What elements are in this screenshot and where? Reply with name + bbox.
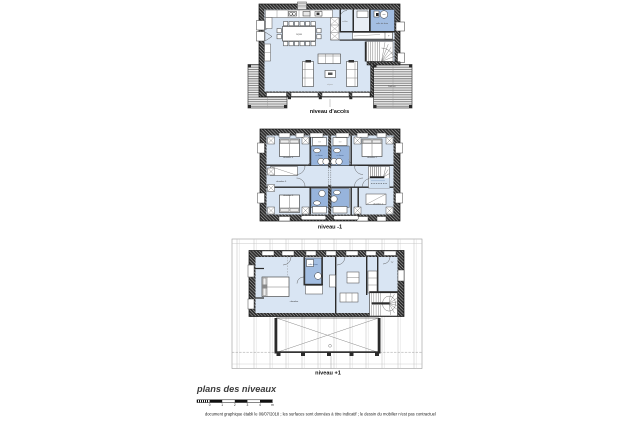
svg-text:m: m <box>271 403 274 407</box>
svg-text:salle d'eau: salle d'eau <box>308 264 318 266</box>
svg-text:2: 2 <box>234 403 236 407</box>
svg-text:0: 0 <box>209 403 211 407</box>
svg-text:3: 3 <box>247 403 249 407</box>
svg-text:chambre 2: chambre 2 <box>373 203 384 206</box>
svg-text:niveau d'accès: niveau d'accès <box>310 109 350 115</box>
svg-text:s. d'eau: s. d'eau <box>337 155 344 157</box>
svg-text:repas: repas <box>296 33 303 36</box>
svg-text:1: 1 <box>221 403 223 407</box>
svg-text:cellier: cellier <box>342 20 348 23</box>
svg-text:plans des niveaux: plans des niveaux <box>196 384 277 394</box>
svg-text:chambre 4: chambre 4 <box>283 156 294 159</box>
svg-text:niveau +1: niveau +1 <box>315 371 341 377</box>
svg-text:séjour: séjour <box>327 83 333 86</box>
svg-text:4: 4 <box>259 403 261 407</box>
svg-text:niveau -1: niveau -1 <box>318 225 342 231</box>
svg-text:chambre: chambre <box>290 300 299 303</box>
svg-text:+: + <box>388 34 390 38</box>
svg-text:chambre 5: chambre 5 <box>276 180 287 183</box>
svg-text:▭: ▭ <box>318 140 321 144</box>
svg-text:document graphique établi le 0: document graphique établi le 06/07/2018 … <box>205 411 436 416</box>
svg-text:chambre 1: chambre 1 <box>367 156 378 159</box>
svg-text:▭: ▭ <box>339 140 342 144</box>
svg-text:balcon: balcon <box>388 84 396 88</box>
svg-text:chambre 3: chambre 3 <box>283 194 294 197</box>
svg-text:s. d'eau: s. d'eau <box>316 155 323 157</box>
svg-text:salle de bain: salle de bain <box>376 23 389 25</box>
